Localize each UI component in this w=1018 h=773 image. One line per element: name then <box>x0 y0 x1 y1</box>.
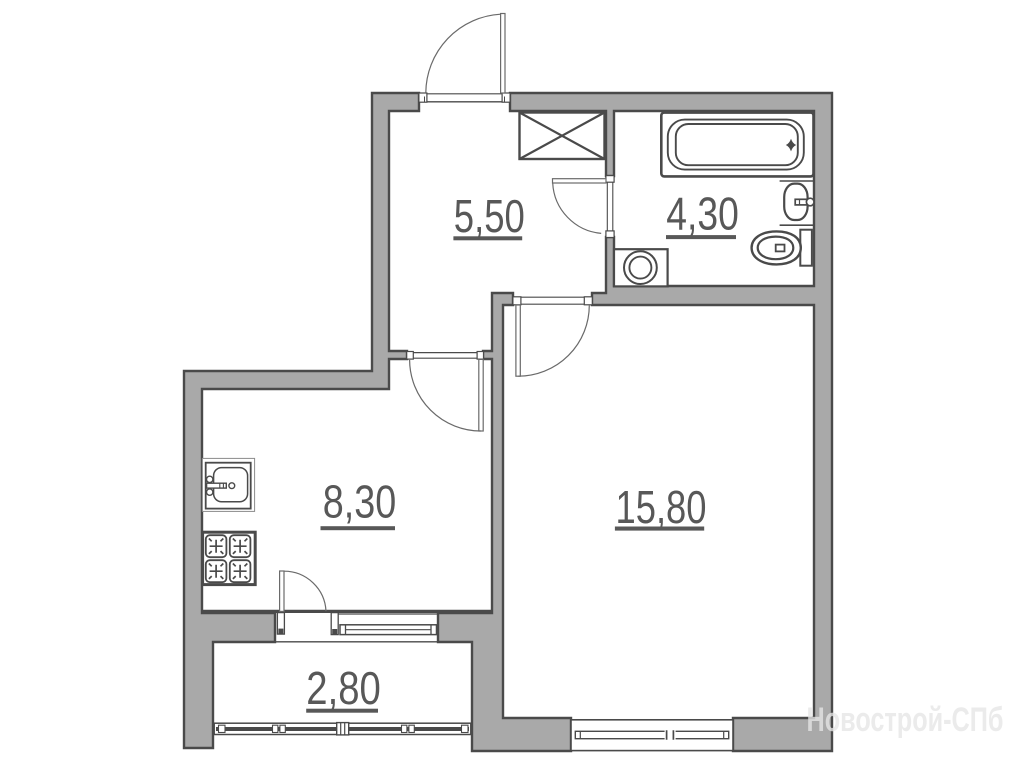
svg-text:8,30: 8,30 <box>323 475 397 527</box>
svg-text:15,80: 15,80 <box>616 481 707 533</box>
svg-text:2,80: 2,80 <box>306 662 381 714</box>
svg-text:Новострой-СПб: Новострой-СПб <box>807 701 1004 739</box>
svg-text:4,30: 4,30 <box>666 187 739 239</box>
svg-text:5,50: 5,50 <box>454 190 525 242</box>
